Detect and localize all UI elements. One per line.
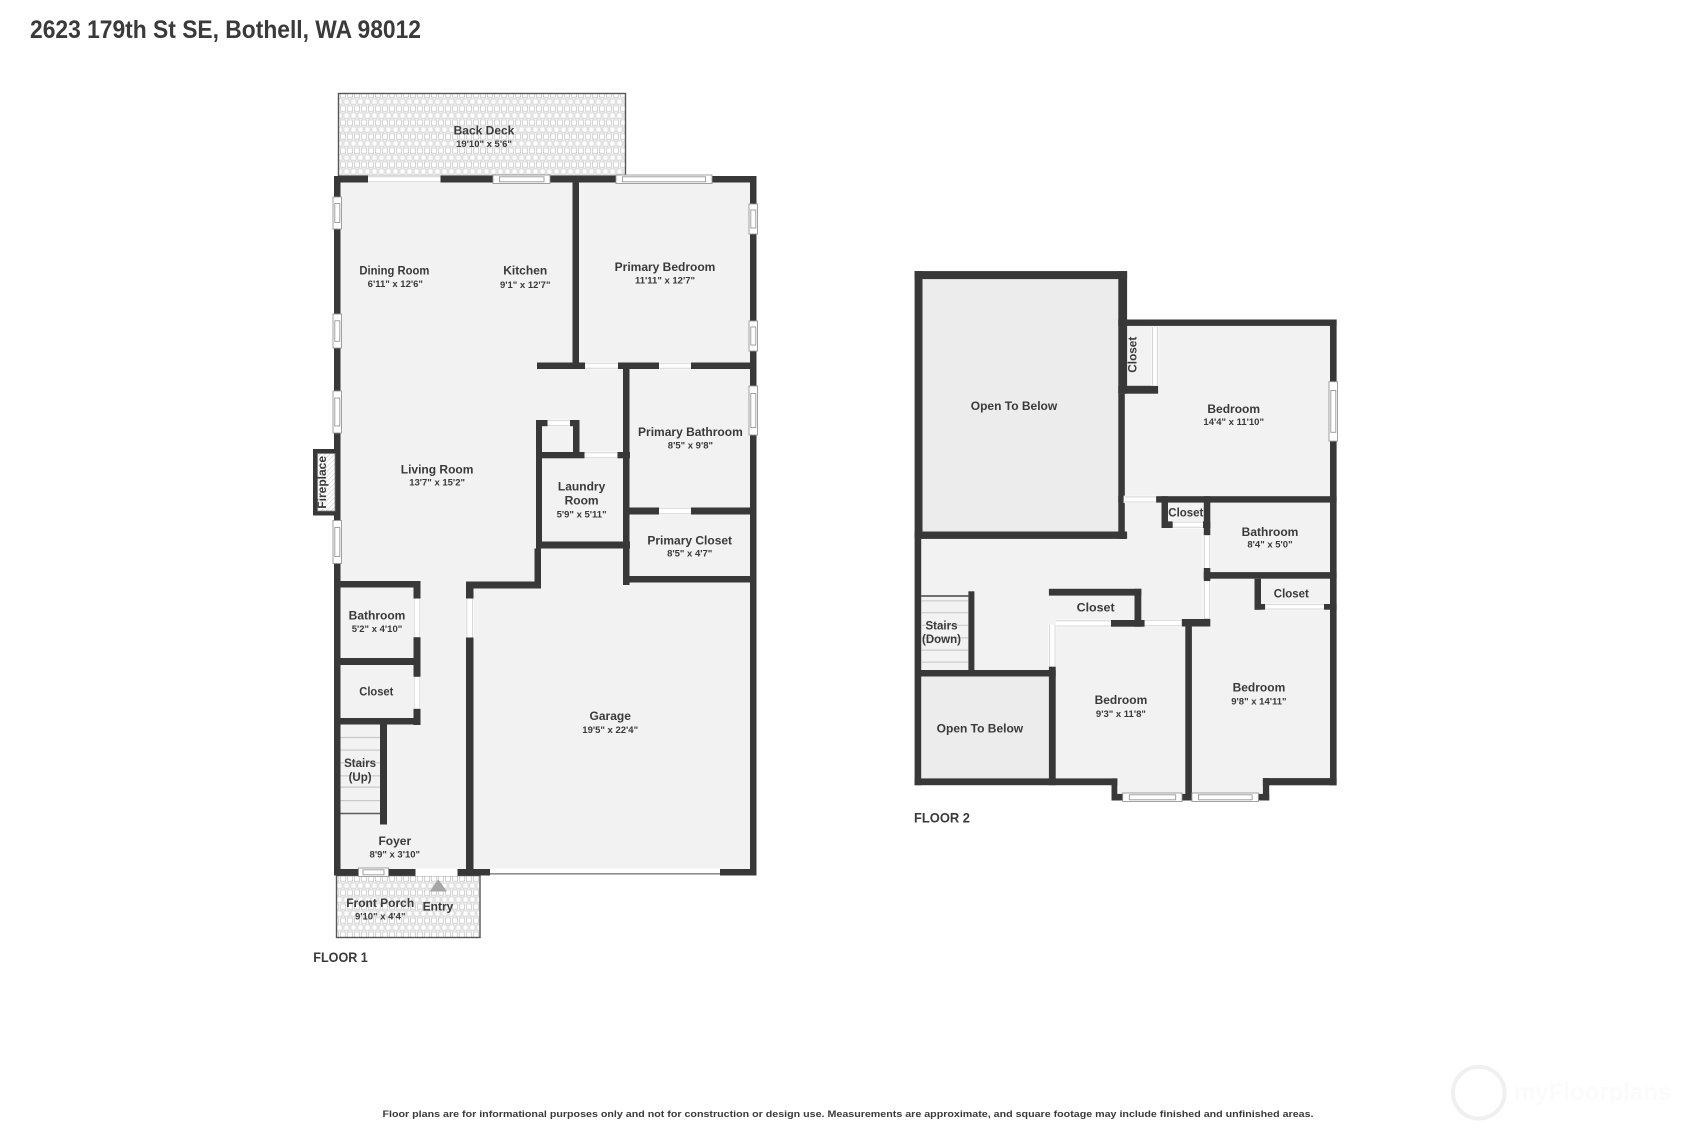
svg-text:19'10" x 5'6": 19'10" x 5'6" [456,139,512,150]
svg-text:Living Room: Living Room [401,462,474,476]
svg-text:Bedroom: Bedroom [1095,693,1148,707]
svg-text:FLOOR 2: FLOOR 2 [914,810,970,826]
svg-text:Primary Bedroom: Primary Bedroom [615,260,716,274]
svg-text:13'7" x 15'2": 13'7" x 15'2" [409,478,465,489]
svg-text:Closet: Closet [1168,505,1203,519]
svg-text:(Up): (Up) [349,772,372,784]
svg-text:Closet: Closet [359,685,393,699]
svg-text:9'3" x 11'8": 9'3" x 11'8" [1096,709,1146,720]
svg-text:Open To Below: Open To Below [937,722,1024,736]
svg-text:Open To Below: Open To Below [971,399,1058,413]
svg-text:5'9" x 5'11": 5'9" x 5'11" [557,509,607,520]
svg-text:8'9" x 3'10": 8'9" x 3'10" [370,850,421,861]
svg-text:Room: Room [565,494,599,508]
svg-text:Fireplace: Fireplace [315,456,329,509]
svg-text:9'8" x 14'11": 9'8" x 14'11" [1231,696,1286,707]
svg-text:Foyer: Foyer [378,834,411,848]
svg-text:Primary Bathroom: Primary Bathroom [638,425,743,439]
svg-text:Stairs: Stairs [344,758,376,770]
svg-text:Primary Closet: Primary Closet [647,533,732,547]
svg-text:FLOOR 1: FLOOR 1 [313,949,368,965]
svg-text:Bathroom: Bathroom [1242,525,1299,539]
svg-text:Stairs: Stairs [926,620,958,632]
svg-text:8'5" x 9'8": 8'5" x 9'8" [668,440,713,451]
svg-text:5'2" x 4'10": 5'2" x 4'10" [352,624,403,635]
svg-text:14'4" x 11'10": 14'4" x 11'10" [1203,417,1264,428]
svg-text:(Down): (Down) [922,634,961,646]
svg-text:Entry: Entry [423,900,454,914]
svg-text:myFloorplans: myFloorplans [1514,1079,1671,1106]
svg-text:Kitchen: Kitchen [503,264,547,278]
svg-text:Bedroom: Bedroom [1207,402,1260,416]
svg-text:Floor plans are for informatio: Floor plans are for informational purpos… [383,1109,1314,1120]
svg-text:11'11" x 12'7": 11'11" x 12'7" [635,276,695,287]
svg-text:Laundry: Laundry [558,480,606,494]
svg-text:Front Porch: Front Porch [346,896,414,910]
svg-text:Closet: Closet [1126,337,1140,373]
svg-text:9'10" x 4'4": 9'10" x 4'4" [355,912,406,923]
svg-text:Back Deck: Back Deck [454,123,515,137]
svg-text:19'5" x 22'4": 19'5" x 22'4" [582,725,638,736]
svg-text:Closet: Closet [1274,587,1309,601]
svg-text:Dining Room: Dining Room [359,264,429,278]
svg-text:Bathroom: Bathroom [349,609,406,623]
svg-text:Bedroom: Bedroom [1233,681,1286,695]
svg-text:9'1" x 12'7": 9'1" x 12'7" [500,280,551,291]
svg-text:2623 179th St SE, Bothell, WA: 2623 179th St SE, Bothell, WA 98012 [30,16,421,44]
svg-text:Closet: Closet [1077,601,1115,615]
svg-text:Garage: Garage [590,709,632,723]
svg-text:8'5" x 4'7": 8'5" x 4'7" [667,548,712,559]
svg-text:8'4" x 5'0": 8'4" x 5'0" [1247,540,1292,551]
svg-text:6'11" x 12'6": 6'11" x 12'6" [368,279,423,290]
